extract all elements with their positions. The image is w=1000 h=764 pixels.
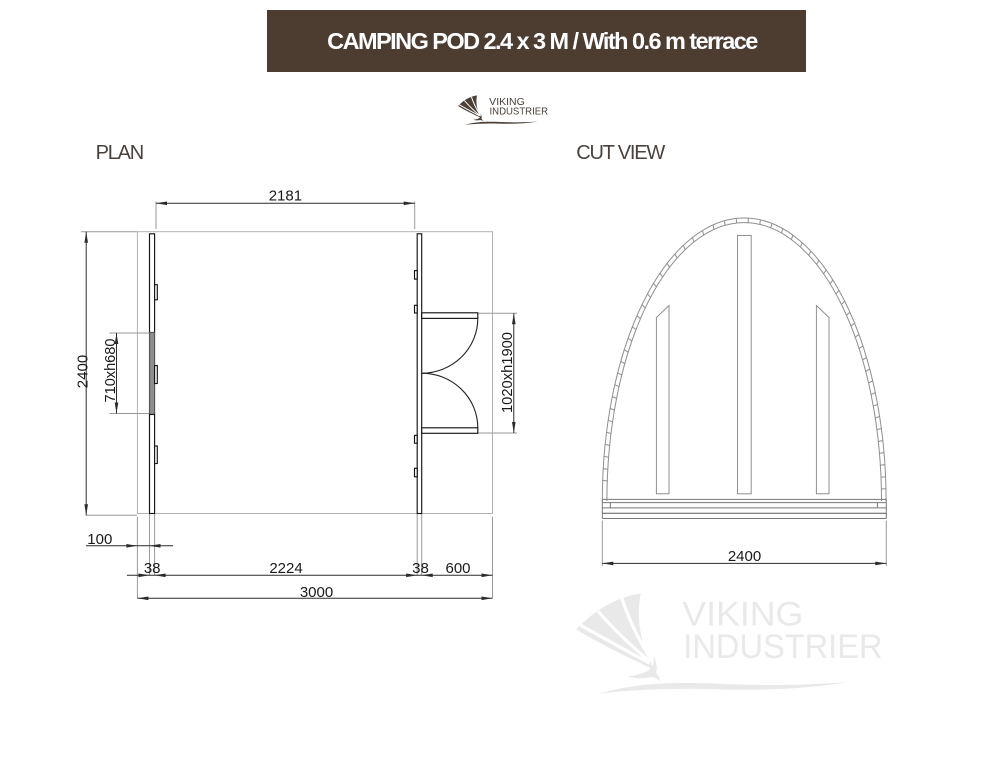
svg-text:2181: 2181 (269, 188, 302, 205)
svg-text:1020xh1900: 1020xh1900 (499, 332, 516, 413)
svg-text:2400: 2400 (75, 355, 92, 388)
svg-text:PLAN: PLAN (96, 142, 143, 164)
svg-text:600: 600 (445, 560, 470, 577)
svg-text:100: 100 (87, 531, 112, 548)
svg-text:710xh680: 710xh680 (102, 339, 119, 403)
svg-text:CUT VIEW: CUT VIEW (576, 142, 665, 164)
svg-text:2400: 2400 (728, 548, 761, 565)
svg-text:38: 38 (144, 560, 161, 577)
svg-text:3000: 3000 (300, 584, 333, 601)
svg-text:38: 38 (412, 560, 429, 577)
svg-text:2224: 2224 (269, 560, 302, 577)
